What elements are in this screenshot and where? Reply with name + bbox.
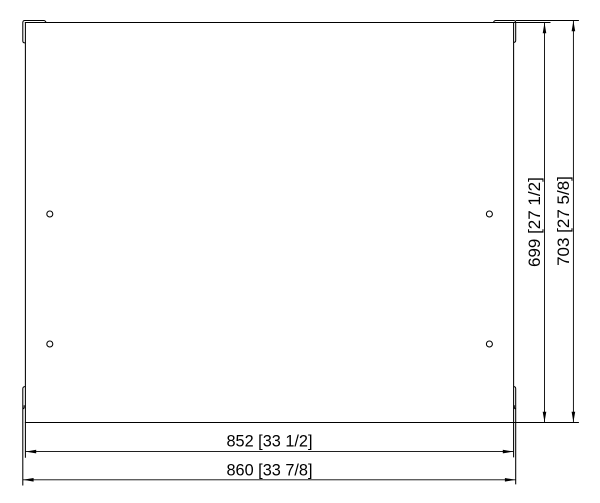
svg-text:860 [33 7/8]: 860 [33 7/8] [226,461,312,479]
svg-text:703 [27 5/8]: 703 [27 5/8] [554,176,573,266]
svg-text:699 [27 1/2]: 699 [27 1/2] [525,177,544,267]
svg-text:852 [33 1/2]: 852 [33 1/2] [226,432,312,450]
